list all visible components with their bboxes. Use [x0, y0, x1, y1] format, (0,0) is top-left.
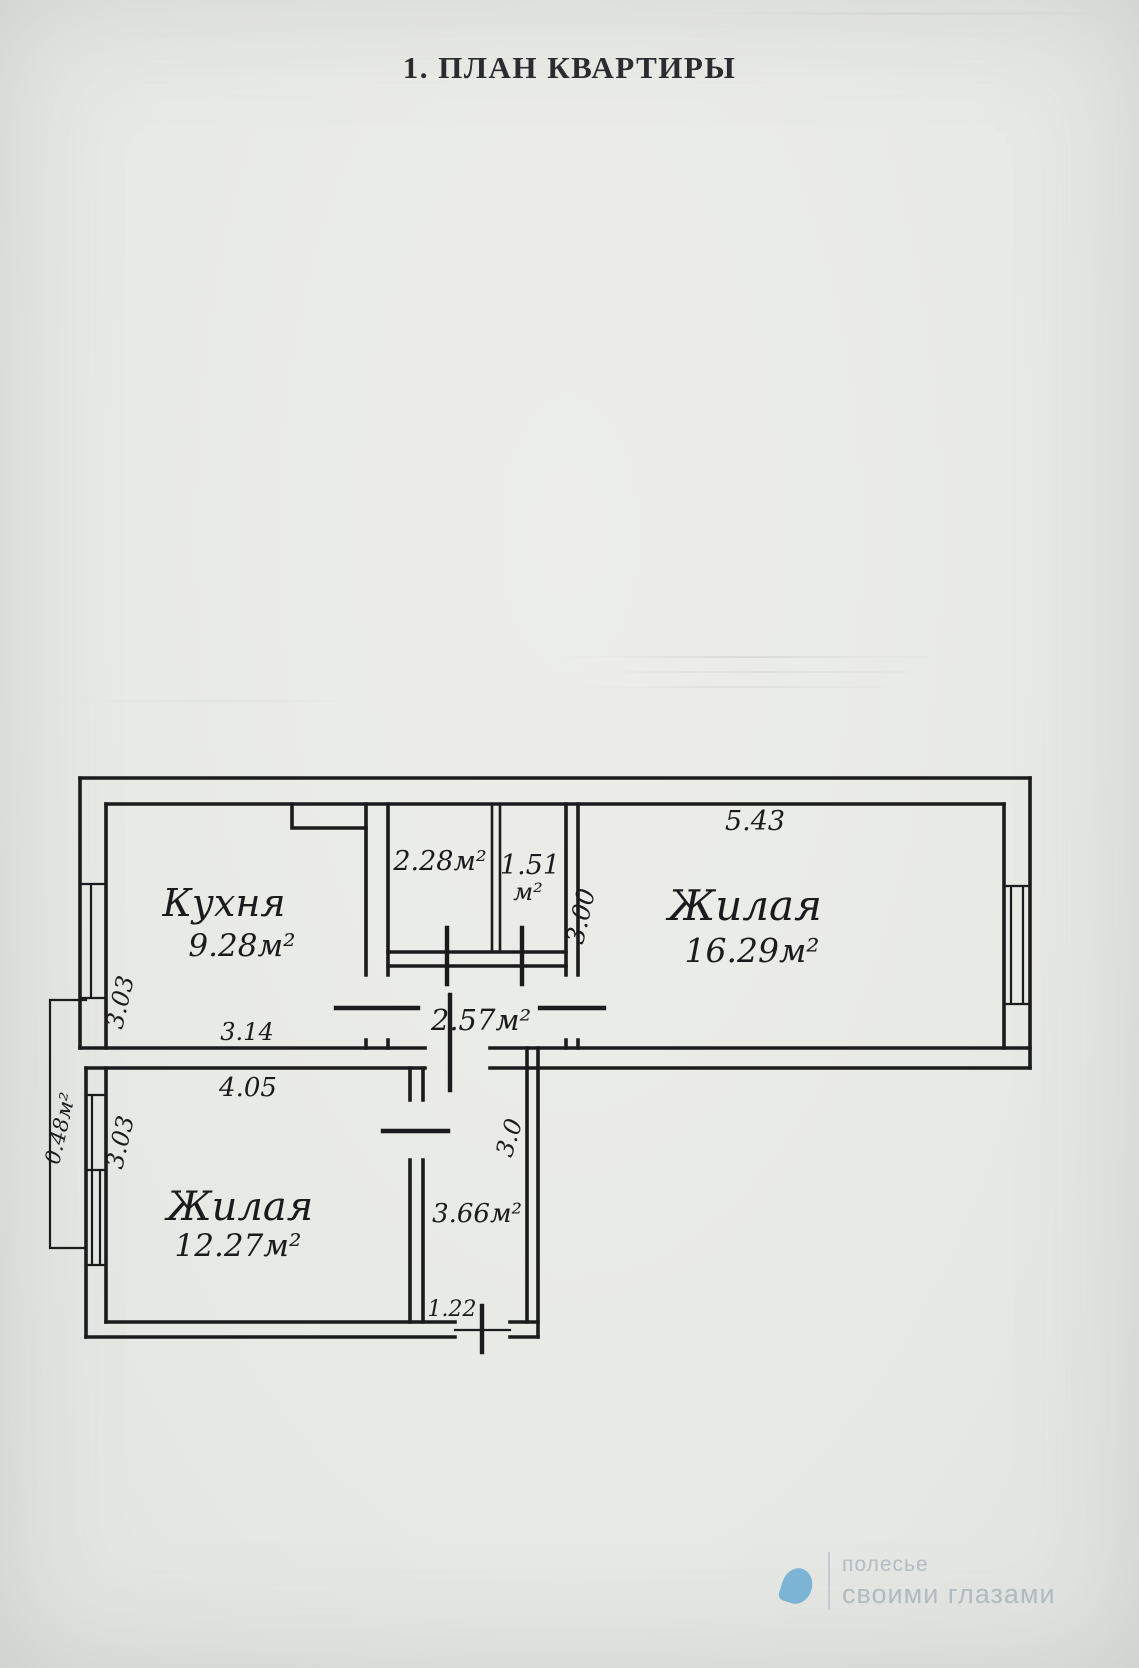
bathroom-area: 2.28м²	[392, 846, 486, 877]
living-right-label: Жилая	[665, 881, 822, 930]
door-ticks-group	[336, 928, 604, 1352]
corridor-area: 2.57м²	[430, 1003, 531, 1037]
scanned-floor-plan-page: 1. ПЛАН КВАРТИРЫ	[0, 0, 1139, 1668]
kitchen-label: Кухня	[161, 881, 285, 925]
watermark-drop-icon	[777, 1564, 817, 1608]
living-right-width-dim: 5.43	[725, 806, 785, 837]
watermark-separator	[828, 1552, 830, 1610]
living-left-width-dim: 4.05	[218, 1073, 277, 1103]
living-left-area: 12.27м²	[175, 1228, 302, 1264]
living-left-label: Жилая	[164, 1184, 314, 1230]
partition-walls-group	[492, 804, 500, 952]
kitchen-area: 9.28м²	[188, 928, 295, 964]
floor-plan-drawing: Кухня 9.28м² 3.03 3.14 2.28м² 1.51 м² 2.…	[0, 0, 1139, 1668]
wc-area-value: 1.51	[500, 850, 560, 881]
watermark-brand: полесье	[842, 1554, 1056, 1576]
hall-height-dim: 3.0	[490, 1115, 528, 1160]
wc-area-unit: м²	[513, 878, 543, 906]
living-right-area: 16.29м²	[684, 931, 819, 970]
watermark-tagline: своими глазами	[842, 1580, 1056, 1608]
kitchen-width-dim: 3.14	[220, 1018, 273, 1046]
hall-area: 3.66м²	[432, 1199, 522, 1229]
entrance-width-dim: 1.22	[428, 1297, 477, 1322]
balcony-area: 0.48м²	[40, 1090, 80, 1166]
watermark: полесье своими глазами	[782, 1552, 1056, 1610]
